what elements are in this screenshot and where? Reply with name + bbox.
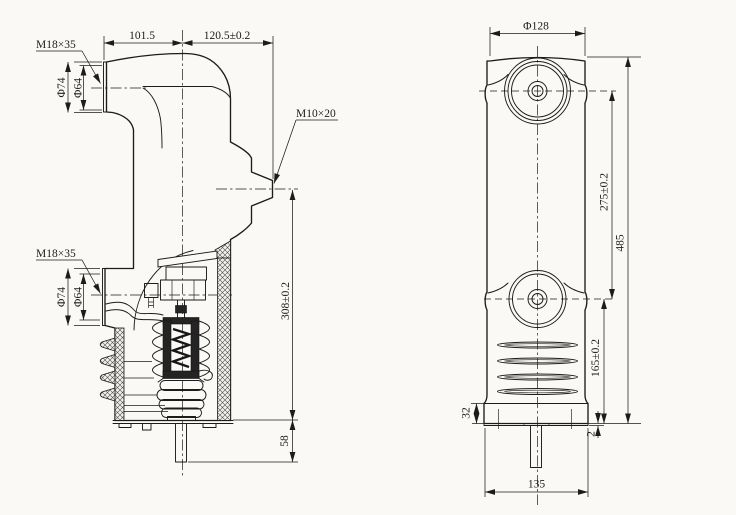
top-cap-plate xyxy=(158,251,217,267)
dim-lower-inner-dia-label: Φ64 xyxy=(73,287,85,307)
side-bolt xyxy=(145,284,159,309)
side-thread-callout-label: M10×20 xyxy=(296,108,336,120)
dim-arm-left-label: 101.5 xyxy=(129,30,155,42)
bellows-skirt xyxy=(157,379,206,421)
dim-base-width: 135 xyxy=(485,428,588,497)
dim-base-height-label: 32 xyxy=(461,407,473,419)
dim-terminal-spacing-label: 275±0.2 xyxy=(599,173,611,211)
front-base-details xyxy=(499,409,572,468)
front-operating-rod xyxy=(531,426,542,468)
operating-rod xyxy=(176,424,187,463)
dim-rod-length-label: 58 xyxy=(279,435,291,447)
dim-base-width-label: 135 xyxy=(528,479,546,491)
dim-arm-lengths: 101.5 120.5±0.2 xyxy=(104,30,273,179)
dim-upper-inner-dia-label: Φ64 xyxy=(73,78,85,98)
left-wall-hatch xyxy=(115,328,124,421)
bottom-plate xyxy=(113,421,233,431)
section-interior xyxy=(100,241,233,462)
upper-contact-stack xyxy=(161,267,207,321)
dim-upper-outer-dia-label: Φ74 xyxy=(56,77,68,97)
front-body-outline xyxy=(484,58,588,426)
strap-upper-edge xyxy=(106,302,163,315)
shed-fins xyxy=(100,338,115,401)
right-wall-hatch xyxy=(218,258,231,421)
dim-lower-outer-dia-label: Φ74 xyxy=(56,287,68,307)
dim-vertical-heights: 275±0.2 485 165±0.2 xyxy=(472,57,641,424)
dim-arm-right-label: 120.5±0.2 xyxy=(204,30,251,42)
dim-upper-terminal: Φ74 Φ64 xyxy=(56,62,102,113)
dim-lower-terminal: Φ74 Φ64 xyxy=(56,269,100,326)
dim-plate-thickness-label: 2 xyxy=(586,431,598,437)
side-view: 101.5 120.5±0.2 Φ74 Φ64 Φ74 Φ64 M18×35 M… xyxy=(36,30,338,477)
dim-lower-terminal-height-label: 165±0.2 xyxy=(590,339,602,377)
technical-drawing: 101.5 120.5±0.2 Φ74 Φ64 Φ74 Φ64 M18×35 M… xyxy=(0,0,736,515)
front-view: Φ128 275±0.2 485 165±0.2 32 2 xyxy=(461,21,642,506)
drawing-sheet: 101.5 120.5±0.2 Φ74 Φ64 Φ74 Φ64 M18×35 M… xyxy=(0,0,736,515)
contact-spring xyxy=(173,329,189,367)
dim-overall-height-label: 485 xyxy=(615,234,627,252)
upper-thread-callout-label: M18×35 xyxy=(36,39,76,51)
dim-top-dia-label: Φ128 xyxy=(523,21,549,33)
lower-thread-callout-label: M18×35 xyxy=(36,248,76,260)
dim-body-height-label: 308±0.2 xyxy=(280,282,292,320)
